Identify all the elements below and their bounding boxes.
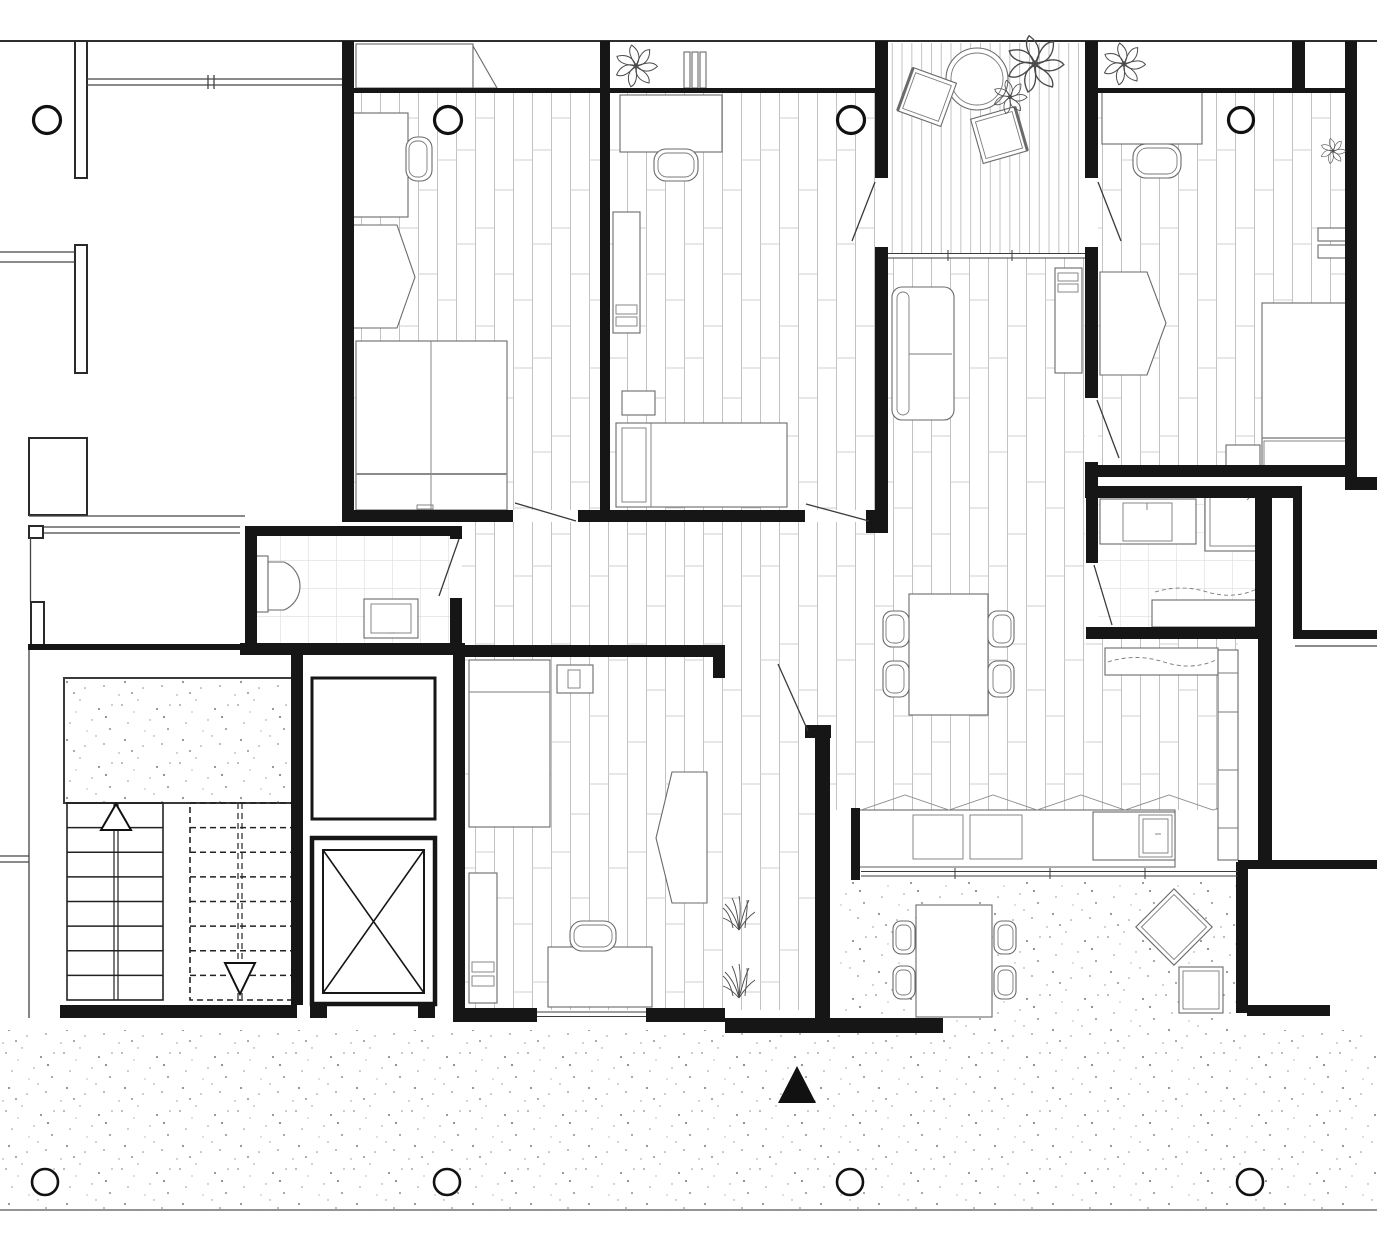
elevator-foot-right — [418, 1003, 435, 1018]
column-bottom-2 — [434, 1169, 460, 1195]
wall-staircore-south — [60, 1005, 297, 1018]
wall-stair-east — [291, 652, 303, 1005]
desk — [1102, 92, 1202, 144]
wall-living-west — [815, 725, 830, 1020]
bed — [356, 341, 507, 510]
exterior-pier-mid-left — [75, 245, 87, 373]
jamb-bedroom4-door — [713, 645, 725, 678]
desk — [352, 113, 408, 217]
nightstand — [622, 391, 655, 415]
bed — [1262, 303, 1348, 473]
entry-jamb-upper — [29, 526, 43, 538]
small-square-table — [1179, 967, 1223, 1013]
wall-bedroom3-east — [1345, 41, 1357, 490]
pier-top-right — [1292, 41, 1305, 90]
wall-living-bedroom3 — [1085, 247, 1098, 398]
column-bottom-4 — [1237, 1169, 1263, 1195]
books — [1318, 245, 1348, 258]
floor-plan-canvas — [0, 0, 1377, 1242]
hallway-floor — [462, 522, 876, 645]
entry-jamb-lower — [31, 602, 44, 645]
shelf-books — [684, 52, 690, 88]
wall-bathroom1-east-stub — [450, 526, 462, 539]
doorway-strip-floor — [725, 645, 815, 657]
desk — [620, 95, 722, 152]
floor-plan-drawing — [0, 0, 1377, 1242]
outdoor-table — [916, 905, 992, 1017]
books — [1318, 228, 1348, 241]
dresser — [469, 873, 497, 1003]
wall-bathroom1-north — [245, 526, 452, 536]
column-bottom-1 — [32, 1169, 58, 1195]
shower — [1205, 491, 1262, 551]
sink-counter — [364, 599, 418, 638]
wall-bathroom1-east — [450, 598, 462, 645]
bed — [469, 660, 550, 827]
wall-closet-band-b3 — [1098, 88, 1345, 93]
exterior-wall-block-left — [29, 438, 87, 515]
wall-bedroom1-bedroom2 — [600, 41, 610, 520]
desk-chair — [1133, 144, 1181, 178]
sideboard-cabinet — [1105, 648, 1218, 675]
dining-chair — [988, 611, 1014, 647]
dining-chair — [988, 661, 1014, 697]
stair-core — [312, 678, 435, 1004]
pier-bedroom2-door — [866, 510, 888, 533]
wall-bedroom3-south — [1086, 465, 1345, 477]
wall-west-bedroom1 — [342, 41, 354, 520]
wall-bedroom2-balcony — [875, 41, 888, 178]
wall-bathroom2-east — [1255, 486, 1272, 639]
dining-table — [909, 594, 988, 715]
wall-bedroom2-living — [875, 247, 888, 533]
wall-bathroom1-west — [245, 526, 257, 655]
wall-bathroom1-south — [240, 643, 465, 655]
wall-bedroom1-south-b — [578, 510, 610, 522]
wall-living-south — [725, 1018, 943, 1033]
wall-step-horizontal — [1293, 630, 1377, 639]
storage-room — [312, 678, 435, 819]
wall-bedroom4-north — [453, 645, 725, 657]
dining-chair — [883, 611, 909, 647]
shelf-books — [700, 52, 706, 88]
dining-chair — [883, 661, 909, 697]
exterior-pier-top-left — [75, 41, 87, 178]
column-top-2 — [435, 107, 462, 134]
wall-step-vertical — [1293, 498, 1302, 632]
column-top-3 — [838, 107, 865, 134]
bookshelf — [613, 212, 640, 333]
shelf-books — [692, 52, 698, 88]
closet-shelf — [356, 44, 473, 88]
bath-bench — [1152, 600, 1262, 627]
desk-chair — [570, 921, 616, 951]
column-top-4 — [1229, 108, 1254, 133]
wall-bedroom4-south-a — [453, 1008, 537, 1022]
nightstand — [557, 665, 593, 693]
wall-bedroom4-south-b — [646, 1008, 725, 1022]
jamb-kitchen-slider — [851, 808, 860, 880]
tall-cabinet-column — [1218, 650, 1238, 860]
wall-bedroom4-west — [453, 657, 465, 1020]
wall-bathroom2-west — [1086, 498, 1098, 563]
wall-closet-band-b1-b2 — [348, 88, 875, 93]
desk — [548, 947, 652, 1007]
wall-east-stub — [1345, 477, 1377, 490]
wall-terrace-south-right — [1247, 1005, 1330, 1016]
column-bottom-3 — [837, 1169, 863, 1195]
wall-bedroom2-south — [606, 510, 805, 522]
wall-terrace-east — [1236, 862, 1248, 1013]
sink-counter — [1100, 499, 1196, 544]
ground-band — [0, 1030, 1377, 1210]
wall-kitchen-east — [1258, 639, 1272, 867]
elevator-foot-left — [310, 1003, 327, 1018]
bed — [616, 423, 787, 507]
desk-chair — [406, 137, 432, 181]
wall-bathroom2-south — [1086, 627, 1272, 639]
round-table — [946, 48, 1008, 110]
wall-balcony-bedroom3 — [1085, 41, 1098, 178]
wall-bedroom1-south-a — [342, 510, 513, 522]
desk-chair — [654, 149, 698, 181]
stair-landing — [64, 678, 293, 803]
wall-terrace-north-right — [1238, 860, 1377, 869]
column-top-1 — [34, 107, 61, 134]
sofa — [892, 287, 954, 420]
